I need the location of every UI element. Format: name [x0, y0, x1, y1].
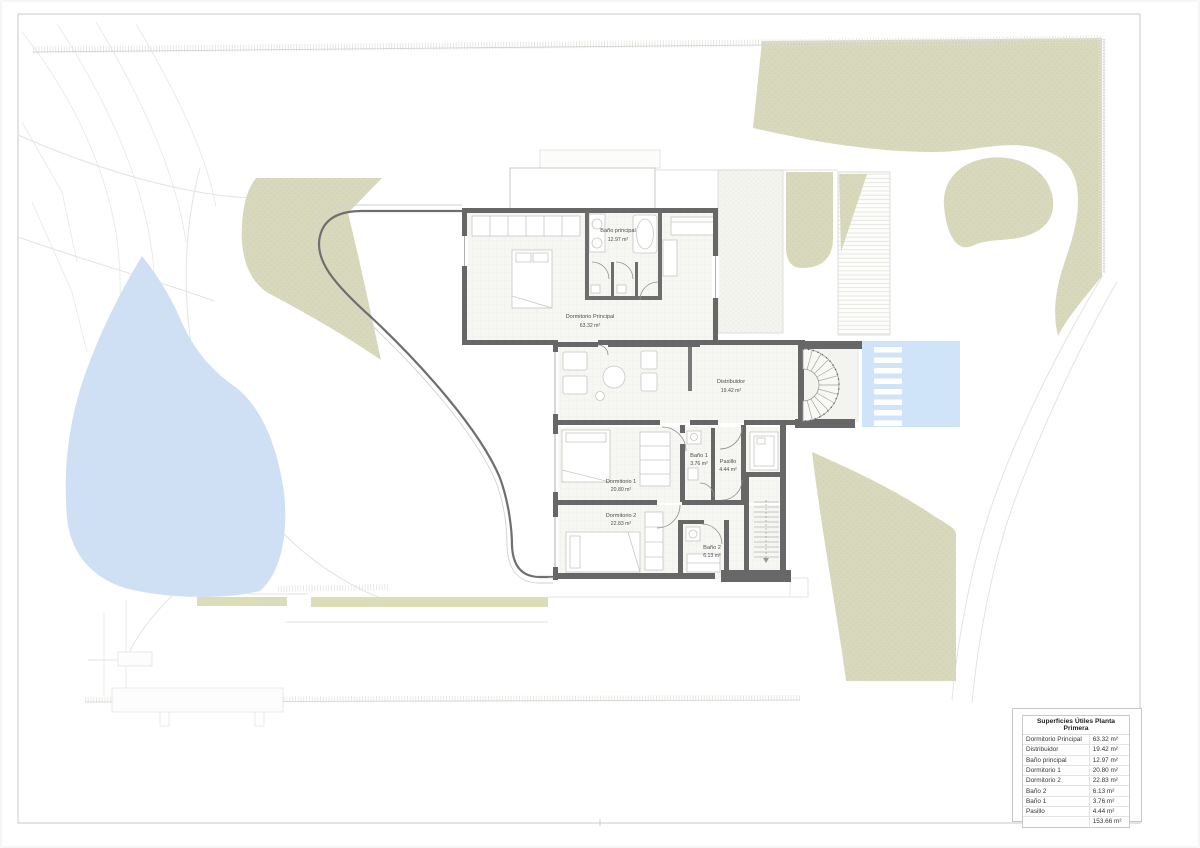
label-pasillo: Pasillo [720, 459, 736, 465]
table-row: Distribuidor 19.42 m² [1023, 745, 1129, 755]
window-master-right [712, 256, 719, 298]
wardrobe-dorm1 [640, 432, 670, 486]
table-row: Baño principal 12.97 m² [1023, 756, 1129, 766]
room-area-value: 12.97 m² [1089, 756, 1129, 765]
table-row-total: 153.66 m² [1023, 817, 1129, 826]
table-row: Baño 1 3.76 m² [1023, 797, 1129, 807]
drawing-sheet: Dormitorio Principal 63.32 m² Baño princ… [0, 0, 1200, 848]
label-bano-1-area: 3.76 m² [690, 461, 708, 467]
window-master-left [461, 236, 468, 266]
table-row: Dormitorio Principal 63.32 m² [1023, 735, 1129, 745]
hedge-strip-east [311, 597, 548, 607]
bed-master [512, 250, 552, 308]
areas-table: Superficies Útiles Planta Primera Dormit… [1022, 715, 1130, 828]
label-pasillo-area: 4.44 m² [719, 467, 737, 473]
shelf-master [663, 240, 677, 276]
label-dormitorio-2-area: 22.83 m² [611, 521, 632, 527]
room-label: Pasillo [1023, 807, 1089, 816]
label-distribuidor: Distribuidor [717, 379, 745, 385]
table-row: Dormitorio 2 22.83 m² [1023, 776, 1129, 786]
label-dormitorio-principal-area: 63.32 m² [580, 323, 601, 329]
label-dormitorio-2: Dormitorio 2 [606, 513, 636, 519]
window-dorm1-left [552, 434, 559, 492]
label-bano-2: Baño 2 [703, 545, 721, 551]
room-area-value: 20.80 m² [1089, 766, 1129, 775]
room-label: Dormitorio 2 [1023, 776, 1089, 785]
total-area-value: 153.66 m² [1089, 817, 1129, 826]
sofa-master [671, 217, 715, 235]
table-row: Pasillo 4.44 m² [1023, 807, 1129, 817]
wardrobe-master [472, 216, 580, 236]
terrace-stippled [718, 170, 783, 333]
window-dorm2-left [552, 517, 559, 567]
room-label: Baño 2 [1023, 786, 1089, 795]
room-area-value: 19.42 m² [1089, 745, 1129, 754]
room-area-value: 63.32 m² [1089, 735, 1129, 744]
areas-table-title: Superficies Útiles Planta Primera [1023, 716, 1129, 735]
room-area-value: 3.76 m² [1089, 797, 1129, 806]
vegetation-planter [786, 172, 833, 268]
wc-2 [617, 285, 626, 293]
hedge-strip-west [197, 597, 287, 606]
room-label [1023, 817, 1089, 826]
wardrobe-dorm2 [645, 512, 663, 570]
wc-1 [591, 285, 600, 293]
label-bano-1: Baño 1 [690, 453, 708, 459]
room-area-value: 4.44 m² [1089, 807, 1129, 816]
table-row: Dormitorio 1 20.80 m² [1023, 766, 1129, 776]
room-area-value: 6.13 m² [1089, 786, 1129, 795]
window-living-left [552, 352, 559, 414]
label-bano-principal: Baño principal [600, 228, 635, 234]
wc-bath1 [688, 468, 698, 480]
label-bano-2-area: 6.13 m² [703, 553, 721, 559]
bed-dorm1 [562, 430, 610, 482]
bed-dorm2 [566, 532, 640, 572]
label-distribuidor-area: 19.42 m² [721, 388, 742, 394]
room-label: Distribuidor [1023, 745, 1089, 754]
pool [862, 341, 960, 427]
elevator [750, 432, 778, 470]
room-label: Dormitorio Principal [1023, 735, 1089, 744]
table-row: Baño 2 6.13 m² [1023, 786, 1129, 796]
room-label: Baño principal [1023, 756, 1089, 765]
room-area-value: 22.83 m² [1089, 776, 1129, 785]
label-dormitorio-1-area: 20.80 m² [611, 487, 632, 493]
label-dormitorio-1: Dormitorio 1 [606, 479, 636, 485]
room-label: Baño 1 [1023, 797, 1089, 806]
bathtub [633, 215, 657, 253]
room-label: Dormitorio 1 [1023, 766, 1089, 775]
legend-panel: Superficies Útiles Planta Primera Dormit… [1012, 708, 1142, 822]
label-dormitorio-principal: Dormitorio Principal [566, 314, 615, 320]
label-bano-principal-area: 12.97 m² [608, 237, 629, 243]
